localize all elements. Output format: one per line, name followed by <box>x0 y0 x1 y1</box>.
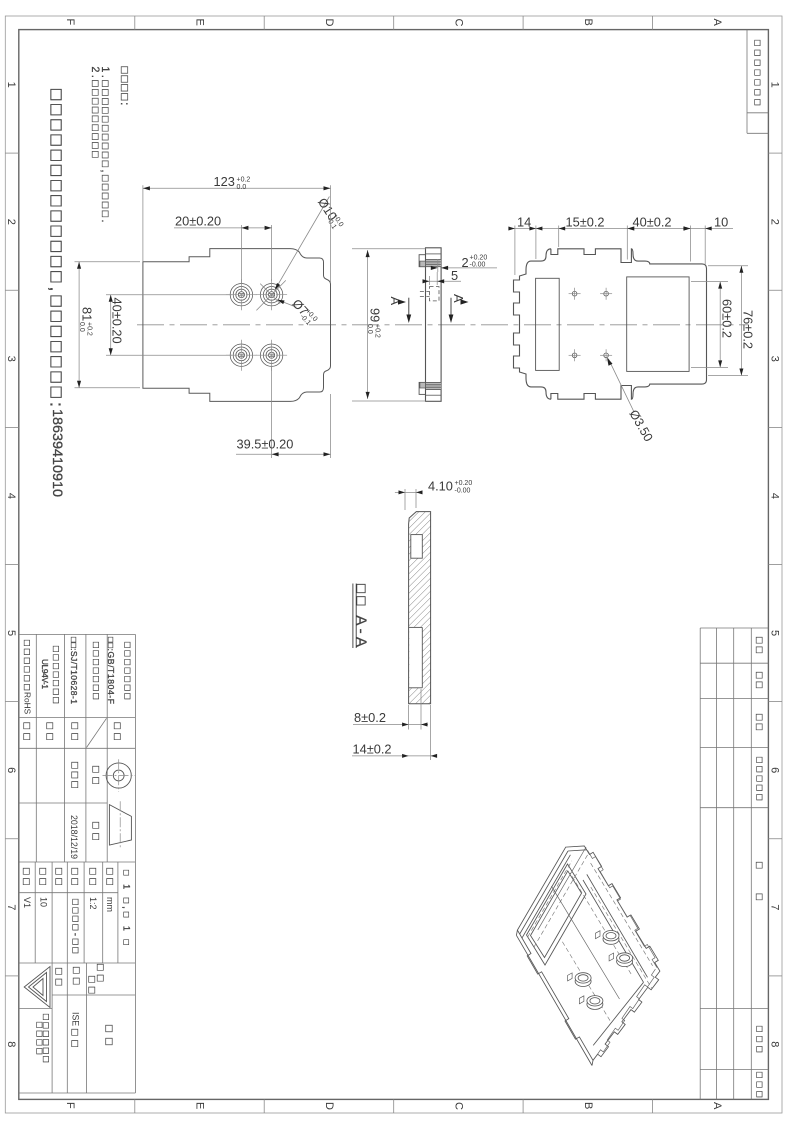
svg-text:81: 81 <box>80 307 95 321</box>
svg-text:□ □: □ □ <box>753 862 765 901</box>
svg-text:C: C <box>452 1102 464 1110</box>
svg-text:1:2: 1:2 <box>88 897 98 910</box>
svg-text:4: 4 <box>769 493 781 499</box>
svg-text:39.5±0.20: 39.5±0.20 <box>237 437 294 452</box>
svg-text:10: 10 <box>38 897 48 907</box>
svg-text:V1: V1 <box>22 897 32 908</box>
svg-text:UL94V-1: UL94V-1 <box>40 659 50 689</box>
svg-text:3: 3 <box>769 356 781 362</box>
svg-text:□□□□□□□□□□□□□,□□□□□□□:: □□□□□□□□□□□□□,□□□□□□□: <box>47 89 68 407</box>
svg-text:6: 6 <box>5 767 17 773</box>
svg-text:7: 7 <box>5 904 17 910</box>
svg-text:□□□: □□□ <box>68 762 80 788</box>
svg-text:14±0.2: 14±0.2 <box>353 741 392 756</box>
svg-text:1: 1 <box>5 82 17 88</box>
svg-text:5: 5 <box>769 630 781 636</box>
svg-text:D: D <box>323 1102 335 1110</box>
svg-text:□□□: □□□ <box>754 1072 765 1097</box>
svg-text:0.0: 0.0 <box>366 324 373 334</box>
svg-text:+0.20: +0.20 <box>455 480 473 487</box>
svg-text:8: 8 <box>5 1041 17 1047</box>
svg-text:F: F <box>64 1102 76 1109</box>
svg-text:3: 3 <box>5 356 17 362</box>
svg-text:40±0.2: 40±0.2 <box>633 214 672 229</box>
svg-text:0.0: 0.0 <box>237 184 247 191</box>
svg-text:E: E <box>194 1102 206 1109</box>
svg-text:20±0.20: 20±0.20 <box>175 214 221 229</box>
svg-text:60±0.2: 60±0.2 <box>720 299 735 338</box>
svg-text:A: A <box>711 19 723 27</box>
svg-text:□□□: □□□ <box>754 1026 765 1052</box>
svg-text:B: B <box>582 19 594 26</box>
svg-text:18639410910: 18639410910 <box>49 409 65 497</box>
svg-text:-0.00: -0.00 <box>455 488 471 495</box>
svg-text:2018/12/19: 2018/12/19 <box>69 815 79 859</box>
svg-text:F: F <box>64 19 76 26</box>
svg-text:C: C <box>452 19 464 27</box>
svg-text:□□□□:: □□□□: <box>118 67 130 106</box>
svg-text:+0.20: +0.20 <box>470 255 488 262</box>
svg-text:RoHS: RoHS <box>23 692 33 715</box>
svg-text:4.10: 4.10 <box>428 478 453 493</box>
svg-text:99: 99 <box>368 308 383 322</box>
svg-text:2: 2 <box>769 219 781 225</box>
svg-text:10: 10 <box>714 214 728 229</box>
svg-text:8±0.2: 8±0.2 <box>354 710 386 725</box>
svg-text:6: 6 <box>769 767 781 773</box>
svg-text:+0.2: +0.2 <box>374 324 381 338</box>
svg-text:2.□□□□□□□□□: 2.□□□□□□□□□ <box>89 67 101 159</box>
svg-text:7: 7 <box>769 904 781 910</box>
svg-text:8: 8 <box>769 1041 781 1047</box>
svg-text:1: 1 <box>769 82 781 88</box>
svg-text:0.0: 0.0 <box>78 322 85 332</box>
svg-text:D: D <box>323 19 335 27</box>
svg-text:40±0.20: 40±0.20 <box>110 298 125 344</box>
svg-text:76±0.2: 76±0.2 <box>741 310 756 349</box>
svg-text:B: B <box>582 1102 594 1109</box>
svg-text:5: 5 <box>451 268 458 283</box>
svg-text:mm: mm <box>105 897 115 912</box>
svg-text:2: 2 <box>462 255 469 270</box>
svg-text:ISE: ISE <box>71 1012 81 1026</box>
svg-text:123: 123 <box>214 174 235 189</box>
svg-text:5: 5 <box>5 630 17 636</box>
svg-text:A: A <box>711 1102 723 1110</box>
svg-text:E: E <box>194 19 206 26</box>
svg-text:2: 2 <box>5 219 17 225</box>
svg-text:14: 14 <box>517 214 531 229</box>
svg-text:4: 4 <box>5 493 17 499</box>
svg-text:15±0.2: 15±0.2 <box>566 214 605 229</box>
svg-text:-0.00: -0.00 <box>470 262 486 269</box>
svg-text:□□:GB/T1804-F: □□:GB/T1804-F <box>106 637 116 704</box>
svg-text:□□:SJ/T10628-1: □□:SJ/T10628-1 <box>69 637 79 704</box>
svg-text:+0.2: +0.2 <box>237 177 251 184</box>
svg-text:+0.2: +0.2 <box>86 322 93 336</box>
